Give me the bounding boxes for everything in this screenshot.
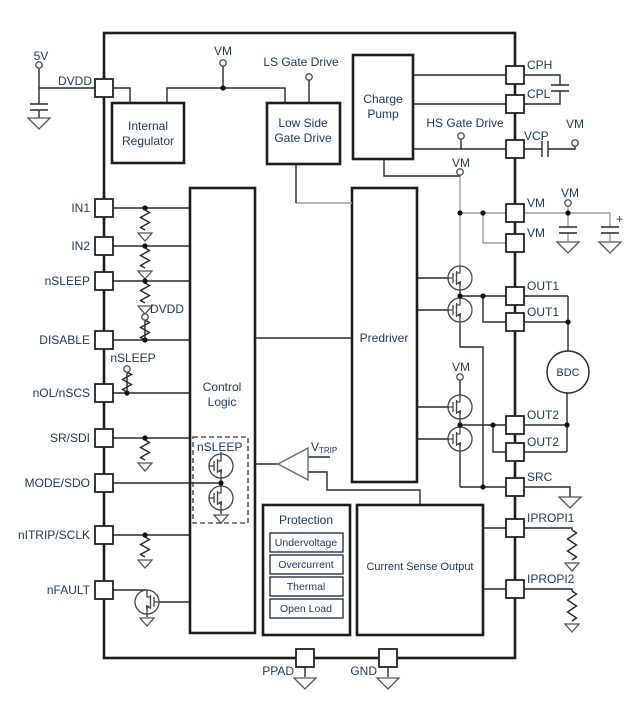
pin-vm1-label: VM bbox=[527, 196, 545, 210]
charge-pump-label-2: Pump bbox=[367, 107, 399, 121]
undervoltage-label: Undervoltage bbox=[275, 537, 338, 549]
pin-gnd-label: GND bbox=[350, 664, 377, 678]
pin-nfault bbox=[95, 581, 113, 599]
pin-sr-sdi bbox=[95, 429, 113, 447]
pin-out1-b bbox=[506, 313, 524, 331]
pin-disable bbox=[95, 331, 113, 349]
pin-out2-a bbox=[506, 416, 524, 434]
low-side-gate-drive-label-1: Low Side bbox=[278, 116, 328, 130]
pin-in2 bbox=[95, 237, 113, 255]
5v-terminal-label: 5V bbox=[34, 49, 49, 63]
nsleep-pullup-terminal-icon bbox=[124, 366, 130, 372]
pin-disable-label: DISABLE bbox=[39, 333, 90, 347]
pin-cpl-label: CPL bbox=[527, 87, 551, 101]
pin-out1-a bbox=[506, 287, 524, 305]
internal-regulator-block bbox=[112, 103, 184, 163]
pin-mode-sdo bbox=[95, 474, 113, 492]
pin-nol-nscs-label: nOL/nSCS bbox=[33, 386, 90, 400]
pin-nsleep-label: nSLEEP bbox=[45, 274, 90, 288]
vm-bulk-terminal-label: VM bbox=[561, 186, 579, 200]
bdc-motor-label: BDC bbox=[556, 367, 579, 379]
pin-nitrip-sclk-label: nITRIP/SCLK bbox=[18, 528, 90, 542]
dvdd-pullup-terminal-icon bbox=[142, 314, 148, 320]
pin-in1 bbox=[95, 199, 113, 217]
pin-vm-1 bbox=[506, 204, 524, 222]
pin-nol-nscs bbox=[95, 384, 113, 402]
bulk-cap-plus-label: + bbox=[616, 212, 623, 226]
pin-src bbox=[506, 478, 524, 496]
vtrip-label: VTRIP bbox=[311, 440, 337, 455]
protection-title: Protection bbox=[279, 513, 333, 527]
hs-gate-drive-terminal-icon bbox=[458, 133, 464, 139]
pin-nsleep bbox=[95, 272, 113, 290]
pin-ipropi1-label: IPROPI1 bbox=[527, 511, 575, 525]
pin-ppad-label: PPAD bbox=[262, 664, 294, 678]
low-side-gate-drive-label-2: Gate Drive bbox=[274, 131, 332, 145]
diagram-canvas: 5V VM LS Gate Drive HS Gate Drive VM VM … bbox=[0, 0, 632, 707]
pin-vm2-label: VM bbox=[527, 226, 545, 240]
open-load-label: Open Load bbox=[280, 603, 332, 615]
vm-bridge2-terminal-label: VM bbox=[452, 360, 470, 374]
ls-gate-drive-terminal-icon bbox=[306, 74, 312, 80]
pin-cph-label: CPH bbox=[527, 58, 552, 72]
pin-cph bbox=[506, 66, 524, 84]
pin-out1a-label: OUT1 bbox=[527, 279, 559, 293]
pin-vcp-label: VCP bbox=[524, 129, 549, 143]
vm-bulk-terminal-icon bbox=[565, 200, 571, 206]
pin-in2-label: IN2 bbox=[71, 239, 90, 253]
pin-out2b-label: OUT2 bbox=[527, 435, 559, 449]
out2-highside-fet-icon bbox=[448, 395, 472, 419]
pin-cpl bbox=[506, 95, 524, 113]
vm-top-terminal-icon bbox=[220, 60, 226, 66]
current-sense-output-label: Current Sense Output bbox=[366, 561, 473, 573]
vm-top-terminal-label: VM bbox=[214, 44, 232, 58]
out2-lowside-fet-icon bbox=[448, 427, 472, 451]
vm-vcp-terminal-icon bbox=[572, 140, 578, 146]
pin-in1-label: IN1 bbox=[71, 201, 90, 215]
pin-ipropi2-label: IPROPI2 bbox=[527, 572, 575, 586]
pin-ipropi1 bbox=[506, 519, 524, 537]
out1-highside-fet-icon bbox=[448, 266, 472, 290]
ls-gate-drive-label: LS Gate Drive bbox=[263, 55, 339, 69]
pin-vm-2 bbox=[506, 234, 524, 252]
pin-src-label: SRC bbox=[527, 470, 553, 484]
pin-dvdd bbox=[95, 79, 113, 97]
nsleep-switch-box-label: nSLEEP bbox=[197, 440, 242, 454]
pin-ppad bbox=[296, 649, 314, 667]
vm-vcp-terminal-label: VM bbox=[566, 117, 584, 131]
thermal-label: Thermal bbox=[287, 581, 326, 593]
pulldown-resistor-icons bbox=[138, 210, 152, 568]
control-logic-label-1: Control bbox=[203, 380, 242, 394]
out1-lowside-fet-icon bbox=[448, 298, 472, 322]
predriver-label: Predriver bbox=[360, 331, 409, 345]
pin-nitrip-sclk bbox=[95, 526, 113, 544]
pin-dvdd-label: DVDD bbox=[58, 74, 92, 88]
pin-sr-sdi-label: SR/SDI bbox=[50, 431, 90, 445]
pin-gnd bbox=[379, 649, 397, 667]
pin-out1b-label: OUT1 bbox=[527, 305, 559, 319]
vm-bridge1-terminal-label: VM bbox=[452, 156, 470, 170]
pin-vcp bbox=[506, 140, 524, 158]
control-logic-label-2: Logic bbox=[208, 395, 237, 409]
overcurrent-label: Overcurrent bbox=[278, 559, 334, 571]
internal-regulator-label-2: Regulator bbox=[122, 134, 174, 148]
hs-gate-drive-label: HS Gate Drive bbox=[426, 116, 504, 130]
internal-regulator-label-1: Internal bbox=[128, 119, 168, 133]
pin-nfault-label: nFAULT bbox=[47, 583, 91, 597]
pin-out2a-label: OUT2 bbox=[527, 408, 559, 422]
pin-out2-b bbox=[506, 443, 524, 461]
vm-bridge2-terminal-icon bbox=[457, 374, 463, 380]
nsleep-pullup-label: nSLEEP bbox=[110, 351, 155, 365]
pin-ipropi2 bbox=[506, 580, 524, 598]
pin-mode-sdo-label: MODE/SDO bbox=[25, 476, 90, 490]
nfault-opendrain-fet-icon bbox=[135, 590, 159, 614]
control-logic-block bbox=[190, 188, 255, 633]
dvdd-pullup-label: DVDD bbox=[150, 302, 184, 316]
itrip-comparator-icon bbox=[278, 448, 308, 480]
block-diagram: 5V VM LS Gate Drive HS Gate Drive VM VM … bbox=[0, 0, 632, 707]
charge-pump-label-1: Charge bbox=[363, 92, 403, 106]
